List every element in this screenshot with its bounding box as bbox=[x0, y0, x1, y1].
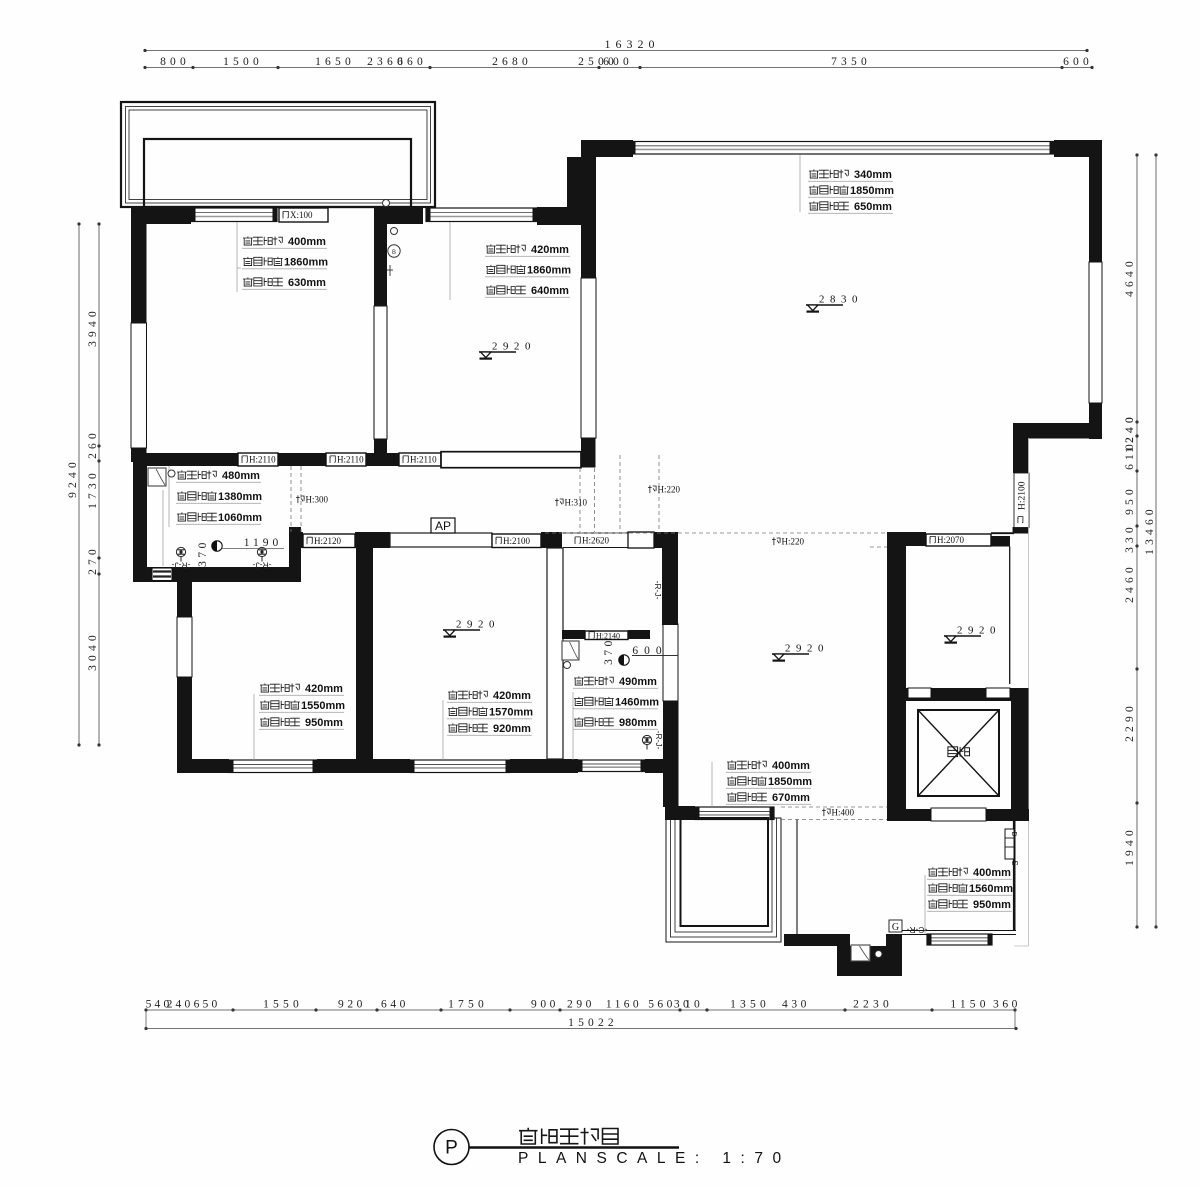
svg-text:1750: 1750 bbox=[448, 999, 488, 1011]
svg-text:PLANSCALE: 1:70: PLANSCALE: 1:70 bbox=[518, 1150, 791, 1167]
svg-text:3940: 3940 bbox=[87, 307, 99, 347]
svg-text:800: 800 bbox=[160, 56, 190, 68]
svg-text:340mm: 340mm bbox=[854, 169, 892, 181]
svg-text:650: 650 bbox=[194, 999, 221, 1011]
svg-text:640mm: 640mm bbox=[531, 285, 569, 297]
svg-text:260: 260 bbox=[87, 429, 99, 459]
svg-text:9240: 9240 bbox=[67, 458, 79, 498]
svg-text:240: 240 bbox=[1124, 413, 1136, 443]
svg-text:430: 430 bbox=[782, 999, 810, 1011]
svg-text:480mm: 480mm bbox=[222, 470, 260, 482]
svg-text:400mm: 400mm bbox=[772, 760, 810, 772]
svg-text:980mm: 980mm bbox=[619, 717, 657, 729]
svg-text:H:310: H:310 bbox=[565, 498, 588, 508]
svg-text:640: 640 bbox=[381, 999, 409, 1011]
svg-text:330: 330 bbox=[1124, 523, 1136, 553]
svg-text:240: 240 bbox=[167, 999, 194, 1011]
svg-text:1560mm: 1560mm bbox=[969, 883, 1013, 895]
svg-text:H:2110: H:2110 bbox=[249, 455, 276, 465]
svg-text:H:2120: H:2120 bbox=[314, 536, 342, 546]
svg-text:15022: 15022 bbox=[568, 1017, 618, 1029]
svg-text:420mm: 420mm bbox=[493, 690, 531, 702]
svg-text:H:2070: H:2070 bbox=[937, 535, 965, 545]
svg-text:1380mm: 1380mm bbox=[218, 491, 262, 503]
svg-text:S: S bbox=[1010, 860, 1019, 865]
svg-text:AP: AP bbox=[435, 519, 451, 533]
svg-text:H:2110: H:2110 bbox=[410, 455, 437, 465]
svg-text:-R-J-: -R-J- bbox=[252, 561, 271, 571]
svg-text:2920: 2920 bbox=[785, 642, 829, 654]
svg-text:H:220: H:220 bbox=[658, 485, 681, 495]
svg-text:650mm: 650mm bbox=[854, 201, 892, 213]
svg-text:360: 360 bbox=[993, 999, 1021, 1011]
svg-text:920mm: 920mm bbox=[493, 723, 531, 735]
svg-text:400mm: 400mm bbox=[288, 236, 326, 248]
svg-text:10: 10 bbox=[685, 999, 703, 1011]
svg-text:3040: 3040 bbox=[87, 631, 99, 671]
svg-text:420mm: 420mm bbox=[305, 683, 343, 695]
svg-text:H:400: H:400 bbox=[832, 808, 855, 818]
svg-text:1860mm: 1860mm bbox=[527, 265, 571, 277]
svg-text:H:2620: H:2620 bbox=[582, 536, 610, 546]
svg-text:1500: 1500 bbox=[223, 56, 263, 68]
svg-text:-R-J-: -R-J- bbox=[653, 581, 663, 600]
svg-text:4640: 4640 bbox=[1124, 257, 1136, 297]
svg-text:1850mm: 1850mm bbox=[850, 185, 894, 197]
svg-text:P: P bbox=[445, 1138, 458, 1159]
svg-text:600: 600 bbox=[1063, 56, 1093, 68]
svg-text:1550: 1550 bbox=[263, 999, 303, 1011]
svg-text:2290: 2290 bbox=[1124, 702, 1136, 742]
svg-text:950mm: 950mm bbox=[305, 717, 343, 729]
svg-text:2920: 2920 bbox=[957, 624, 1001, 636]
svg-text:400mm: 400mm bbox=[973, 867, 1011, 879]
svg-text:1650: 1650 bbox=[315, 56, 355, 68]
svg-text:950: 950 bbox=[1124, 485, 1136, 515]
svg-text:-R-J-: -R-J- bbox=[171, 561, 190, 571]
svg-text:B: B bbox=[392, 250, 396, 256]
svg-text:-R-J-: -R-J- bbox=[654, 731, 664, 750]
svg-text:370: 370 bbox=[197, 539, 209, 567]
svg-text:H:2100: H:2100 bbox=[1018, 481, 1028, 510]
svg-text:1940: 1940 bbox=[1124, 826, 1136, 866]
svg-text:H:300: H:300 bbox=[306, 495, 329, 505]
svg-text:1350: 1350 bbox=[730, 999, 770, 1011]
svg-text:920: 920 bbox=[338, 999, 366, 1011]
svg-text:2230: 2230 bbox=[853, 999, 893, 1011]
svg-text:2920: 2920 bbox=[456, 618, 500, 630]
svg-text:1860mm: 1860mm bbox=[284, 257, 328, 269]
svg-text:1570mm: 1570mm bbox=[489, 707, 533, 719]
svg-text:1160: 1160 bbox=[606, 999, 642, 1011]
svg-text:1730: 1730 bbox=[87, 469, 99, 509]
svg-text:2830: 2830 bbox=[819, 293, 863, 305]
svg-text:1150: 1150 bbox=[950, 999, 989, 1011]
svg-text:270: 270 bbox=[87, 545, 99, 575]
svg-text:2680: 2680 bbox=[492, 56, 532, 68]
svg-text:D: D bbox=[1010, 831, 1017, 836]
svg-text:X:100: X:100 bbox=[290, 210, 313, 220]
svg-text:420mm: 420mm bbox=[531, 244, 569, 256]
svg-text:950mm: 950mm bbox=[973, 899, 1011, 911]
svg-text:560: 560 bbox=[648, 999, 675, 1011]
svg-text:600: 600 bbox=[603, 56, 633, 68]
svg-text:290: 290 bbox=[567, 999, 595, 1011]
svg-text:900: 900 bbox=[531, 999, 559, 1011]
svg-text:660: 660 bbox=[397, 56, 427, 68]
svg-text:490mm: 490mm bbox=[619, 676, 657, 688]
svg-text:610: 610 bbox=[1124, 440, 1136, 470]
svg-text:H:2100: H:2100 bbox=[503, 536, 531, 546]
svg-text:H:2110: H:2110 bbox=[337, 455, 364, 465]
svg-text:H:220: H:220 bbox=[782, 537, 805, 547]
svg-text:1460mm: 1460mm bbox=[615, 697, 659, 709]
svg-text:G: G bbox=[892, 922, 899, 933]
svg-text:16320: 16320 bbox=[605, 37, 660, 51]
svg-text:630mm: 630mm bbox=[288, 277, 326, 289]
svg-text:370: 370 bbox=[603, 637, 615, 665]
svg-text:13460: 13460 bbox=[1144, 505, 1156, 555]
svg-text:2460: 2460 bbox=[1124, 563, 1136, 603]
svg-text:7350: 7350 bbox=[831, 56, 871, 68]
svg-text:1550mm: 1550mm bbox=[301, 700, 345, 712]
svg-text:-C-R-: -C-R- bbox=[906, 925, 927, 935]
svg-text:670mm: 670mm bbox=[772, 792, 810, 804]
svg-text:1190: 1190 bbox=[244, 537, 283, 549]
svg-text:1850mm: 1850mm bbox=[768, 776, 812, 788]
svg-text:2920: 2920 bbox=[492, 340, 536, 352]
svg-text:1060mm: 1060mm bbox=[218, 512, 262, 524]
